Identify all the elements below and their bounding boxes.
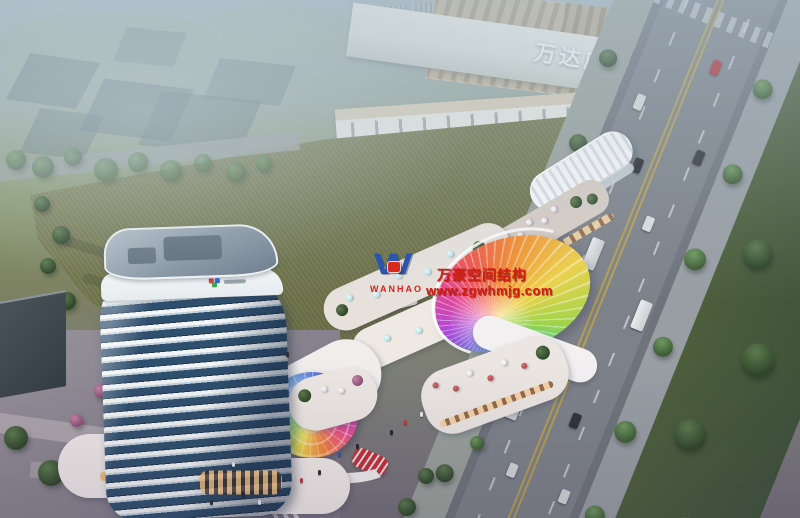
dark-warehouse [0, 290, 66, 398]
far-building [204, 58, 296, 106]
watermark: W WANHAO 万豪空间结构 www.zgwhmjg.com [360, 248, 580, 308]
tower-building [97, 223, 293, 518]
umbrella [320, 385, 327, 392]
person [300, 478, 303, 483]
tree [160, 160, 182, 182]
umbrella [337, 387, 344, 394]
tree [6, 150, 26, 170]
umbrella [540, 216, 548, 224]
tree [94, 158, 118, 182]
person [420, 412, 423, 417]
umbrella-red [487, 374, 495, 382]
tower-roof [103, 223, 279, 281]
rendering-image: 万达广场 [0, 0, 800, 518]
car [641, 215, 655, 232]
tree [568, 194, 584, 210]
watermark-logo-text: WANHAO [370, 284, 423, 294]
tree [418, 468, 434, 484]
tree [52, 226, 70, 244]
person [338, 452, 341, 457]
far-building [20, 108, 105, 160]
roof-equipment [163, 235, 222, 261]
umbrella-red [520, 362, 528, 370]
tree [34, 196, 50, 212]
tower-base-glow [200, 470, 282, 494]
tree [534, 344, 552, 362]
flowering-tree [351, 374, 364, 387]
watermark-company: 万豪空间结构 [437, 265, 527, 285]
person [258, 500, 261, 505]
tree [4, 426, 28, 450]
person [404, 420, 407, 425]
tree [470, 436, 484, 450]
tree [585, 192, 600, 207]
person [286, 352, 289, 357]
tree [128, 152, 148, 172]
person [356, 444, 359, 449]
tree [32, 156, 54, 178]
tree [256, 156, 272, 172]
person [390, 430, 393, 435]
person [210, 500, 213, 505]
car [709, 59, 723, 76]
flowering-tree [70, 414, 83, 427]
person [242, 492, 245, 497]
car [505, 462, 519, 478]
tower-logo-text-bar [224, 279, 246, 284]
far-ground-patch [200, 6, 350, 62]
tree [40, 258, 56, 274]
umbrella [525, 218, 533, 226]
car [568, 412, 582, 429]
watermark-logo-badge [387, 261, 401, 273]
umbrella-red [432, 382, 440, 390]
roof-equipment [128, 247, 157, 264]
tree [64, 148, 82, 166]
person [318, 470, 321, 475]
tree [297, 388, 313, 404]
tower-logo [209, 277, 249, 288]
tree [398, 498, 416, 516]
umbrella [466, 369, 474, 377]
umbrella-red [452, 385, 460, 393]
tree [194, 154, 212, 172]
watermark-website: www.zgwhmjg.com [426, 283, 553, 298]
tree [226, 162, 246, 182]
tower-logo-mark-blue [215, 278, 220, 283]
umbrella [550, 205, 558, 213]
umbrella [500, 359, 508, 367]
person [232, 462, 235, 467]
